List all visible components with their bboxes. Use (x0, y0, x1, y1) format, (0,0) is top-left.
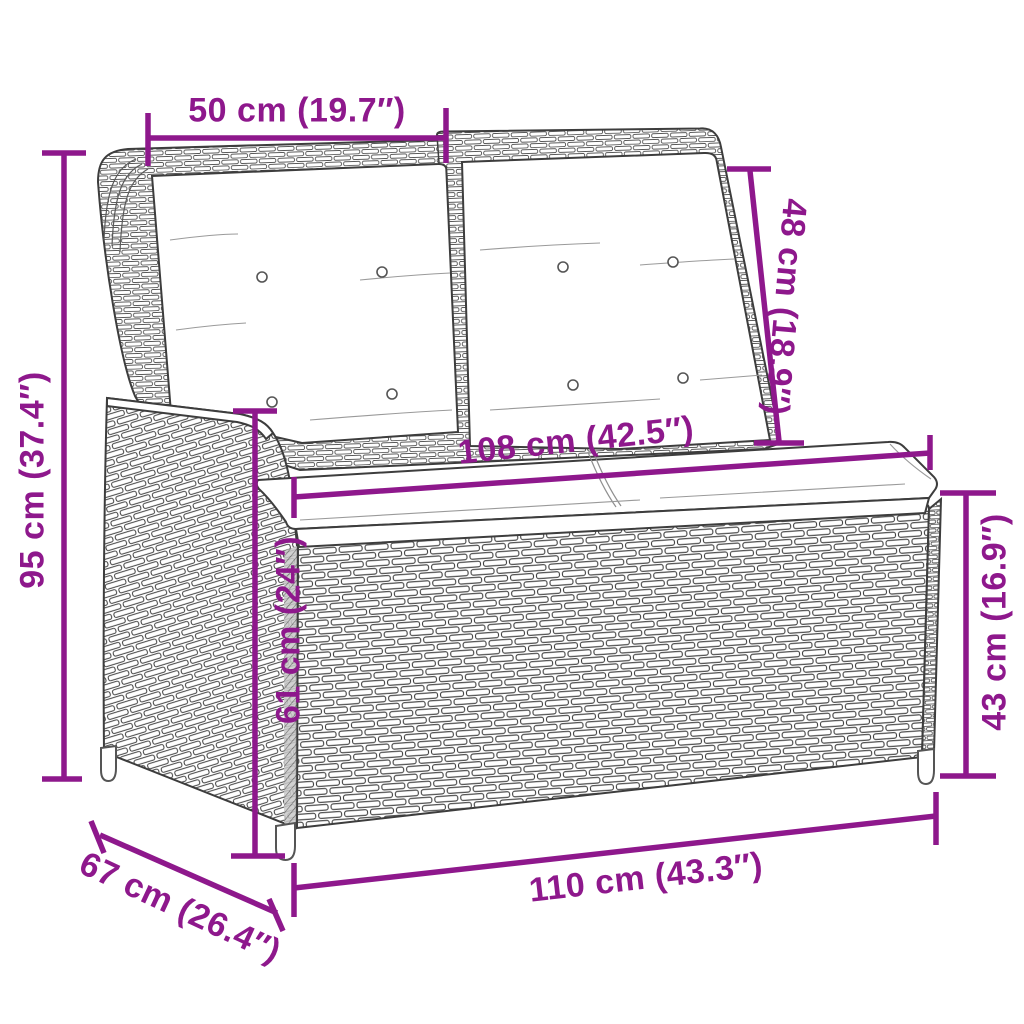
dim-label-backrest-width: 50 cm (19.7″) (188, 92, 405, 131)
bench-illustration (0, 0, 1024, 1024)
leg-back-left (101, 746, 116, 781)
dim-label-seat-front-height: 61 cm (24″) (270, 536, 309, 724)
diagram-canvas: 50 cm (19.7″) 95 cm (37.4″) 48 cm (18.9″… (0, 0, 1024, 1024)
armrest-left (104, 398, 297, 828)
leg-right (918, 749, 934, 784)
back-cushion-right (462, 153, 770, 449)
front-panel (297, 503, 929, 828)
dim-label-side-height: 43 cm (16.9″) (976, 513, 1015, 730)
dim-label-total-height: 95 cm (37.4″) (14, 371, 53, 588)
back-cushion-left (152, 164, 458, 443)
